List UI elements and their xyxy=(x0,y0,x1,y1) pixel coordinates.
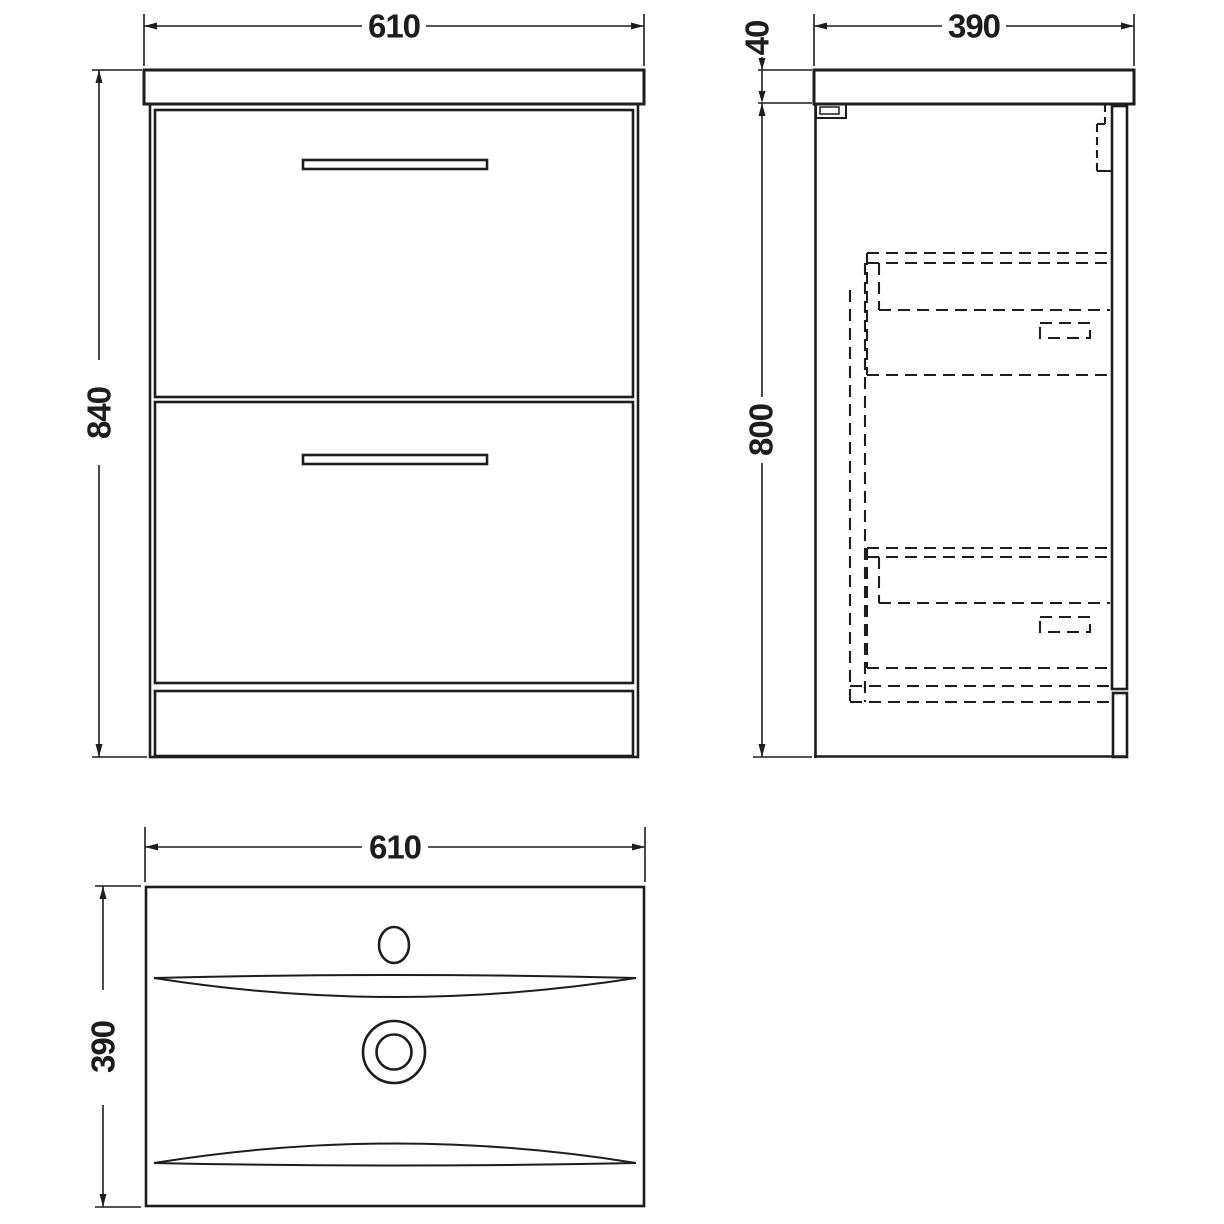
basin-tap-hole xyxy=(379,927,409,963)
hidden-drawer-1 xyxy=(867,253,1112,375)
front-width-label: 610 xyxy=(368,8,420,45)
front-plinth xyxy=(155,691,633,756)
side-height-label: 800 xyxy=(743,404,780,456)
technical-drawing-page: 610 840 xyxy=(0,0,1224,1224)
hidden-drawer-2-runner xyxy=(1040,617,1090,632)
front-worktop xyxy=(144,70,644,104)
wall-bracket xyxy=(816,104,846,118)
hidden-drawer-1-runner xyxy=(1040,323,1090,338)
plan-view: 610 390 xyxy=(85,827,646,1207)
front-height-label: 840 xyxy=(81,387,118,439)
dimension-front-height: 840 xyxy=(81,70,148,757)
hidden-drawer-fronts xyxy=(850,263,1112,702)
basin-rear-lip xyxy=(154,1144,636,1166)
drawer-1-front xyxy=(155,110,633,397)
plan-width-label: 610 xyxy=(369,829,421,866)
front-view: 610 840 xyxy=(81,8,645,758)
dimension-plan-width: 610 xyxy=(145,827,645,882)
dimension-plan-depth: 390 xyxy=(85,886,142,1207)
plan-depth-label: 390 xyxy=(85,1021,122,1073)
dimension-front-width: 610 xyxy=(144,8,644,67)
drawer-2-front xyxy=(155,402,633,683)
dimension-side-depth: 390 xyxy=(814,8,1134,67)
basin-front-lip xyxy=(154,975,636,997)
side-back-foot xyxy=(1113,693,1127,757)
hidden-drawer-2 xyxy=(867,548,1112,668)
basin-outline xyxy=(146,887,644,1206)
side-view: 390 40 800 xyxy=(739,8,1135,759)
side-back-panel xyxy=(1112,106,1127,689)
drawer-2-handle xyxy=(303,455,487,464)
drawer-1-handle xyxy=(303,160,487,169)
worktop-thickness-label: 40 xyxy=(739,21,776,56)
side-depth-label: 390 xyxy=(948,8,1000,45)
side-worktop xyxy=(814,70,1134,104)
front-cabinet-body xyxy=(150,104,638,757)
hanging-rail-detail xyxy=(1097,104,1112,171)
drawing-canvas: 610 840 xyxy=(0,0,1224,1224)
basin-drain xyxy=(363,1021,425,1083)
dimension-worktop-thickness: 40 xyxy=(739,21,813,103)
dimension-side-height: 800 xyxy=(743,103,813,757)
